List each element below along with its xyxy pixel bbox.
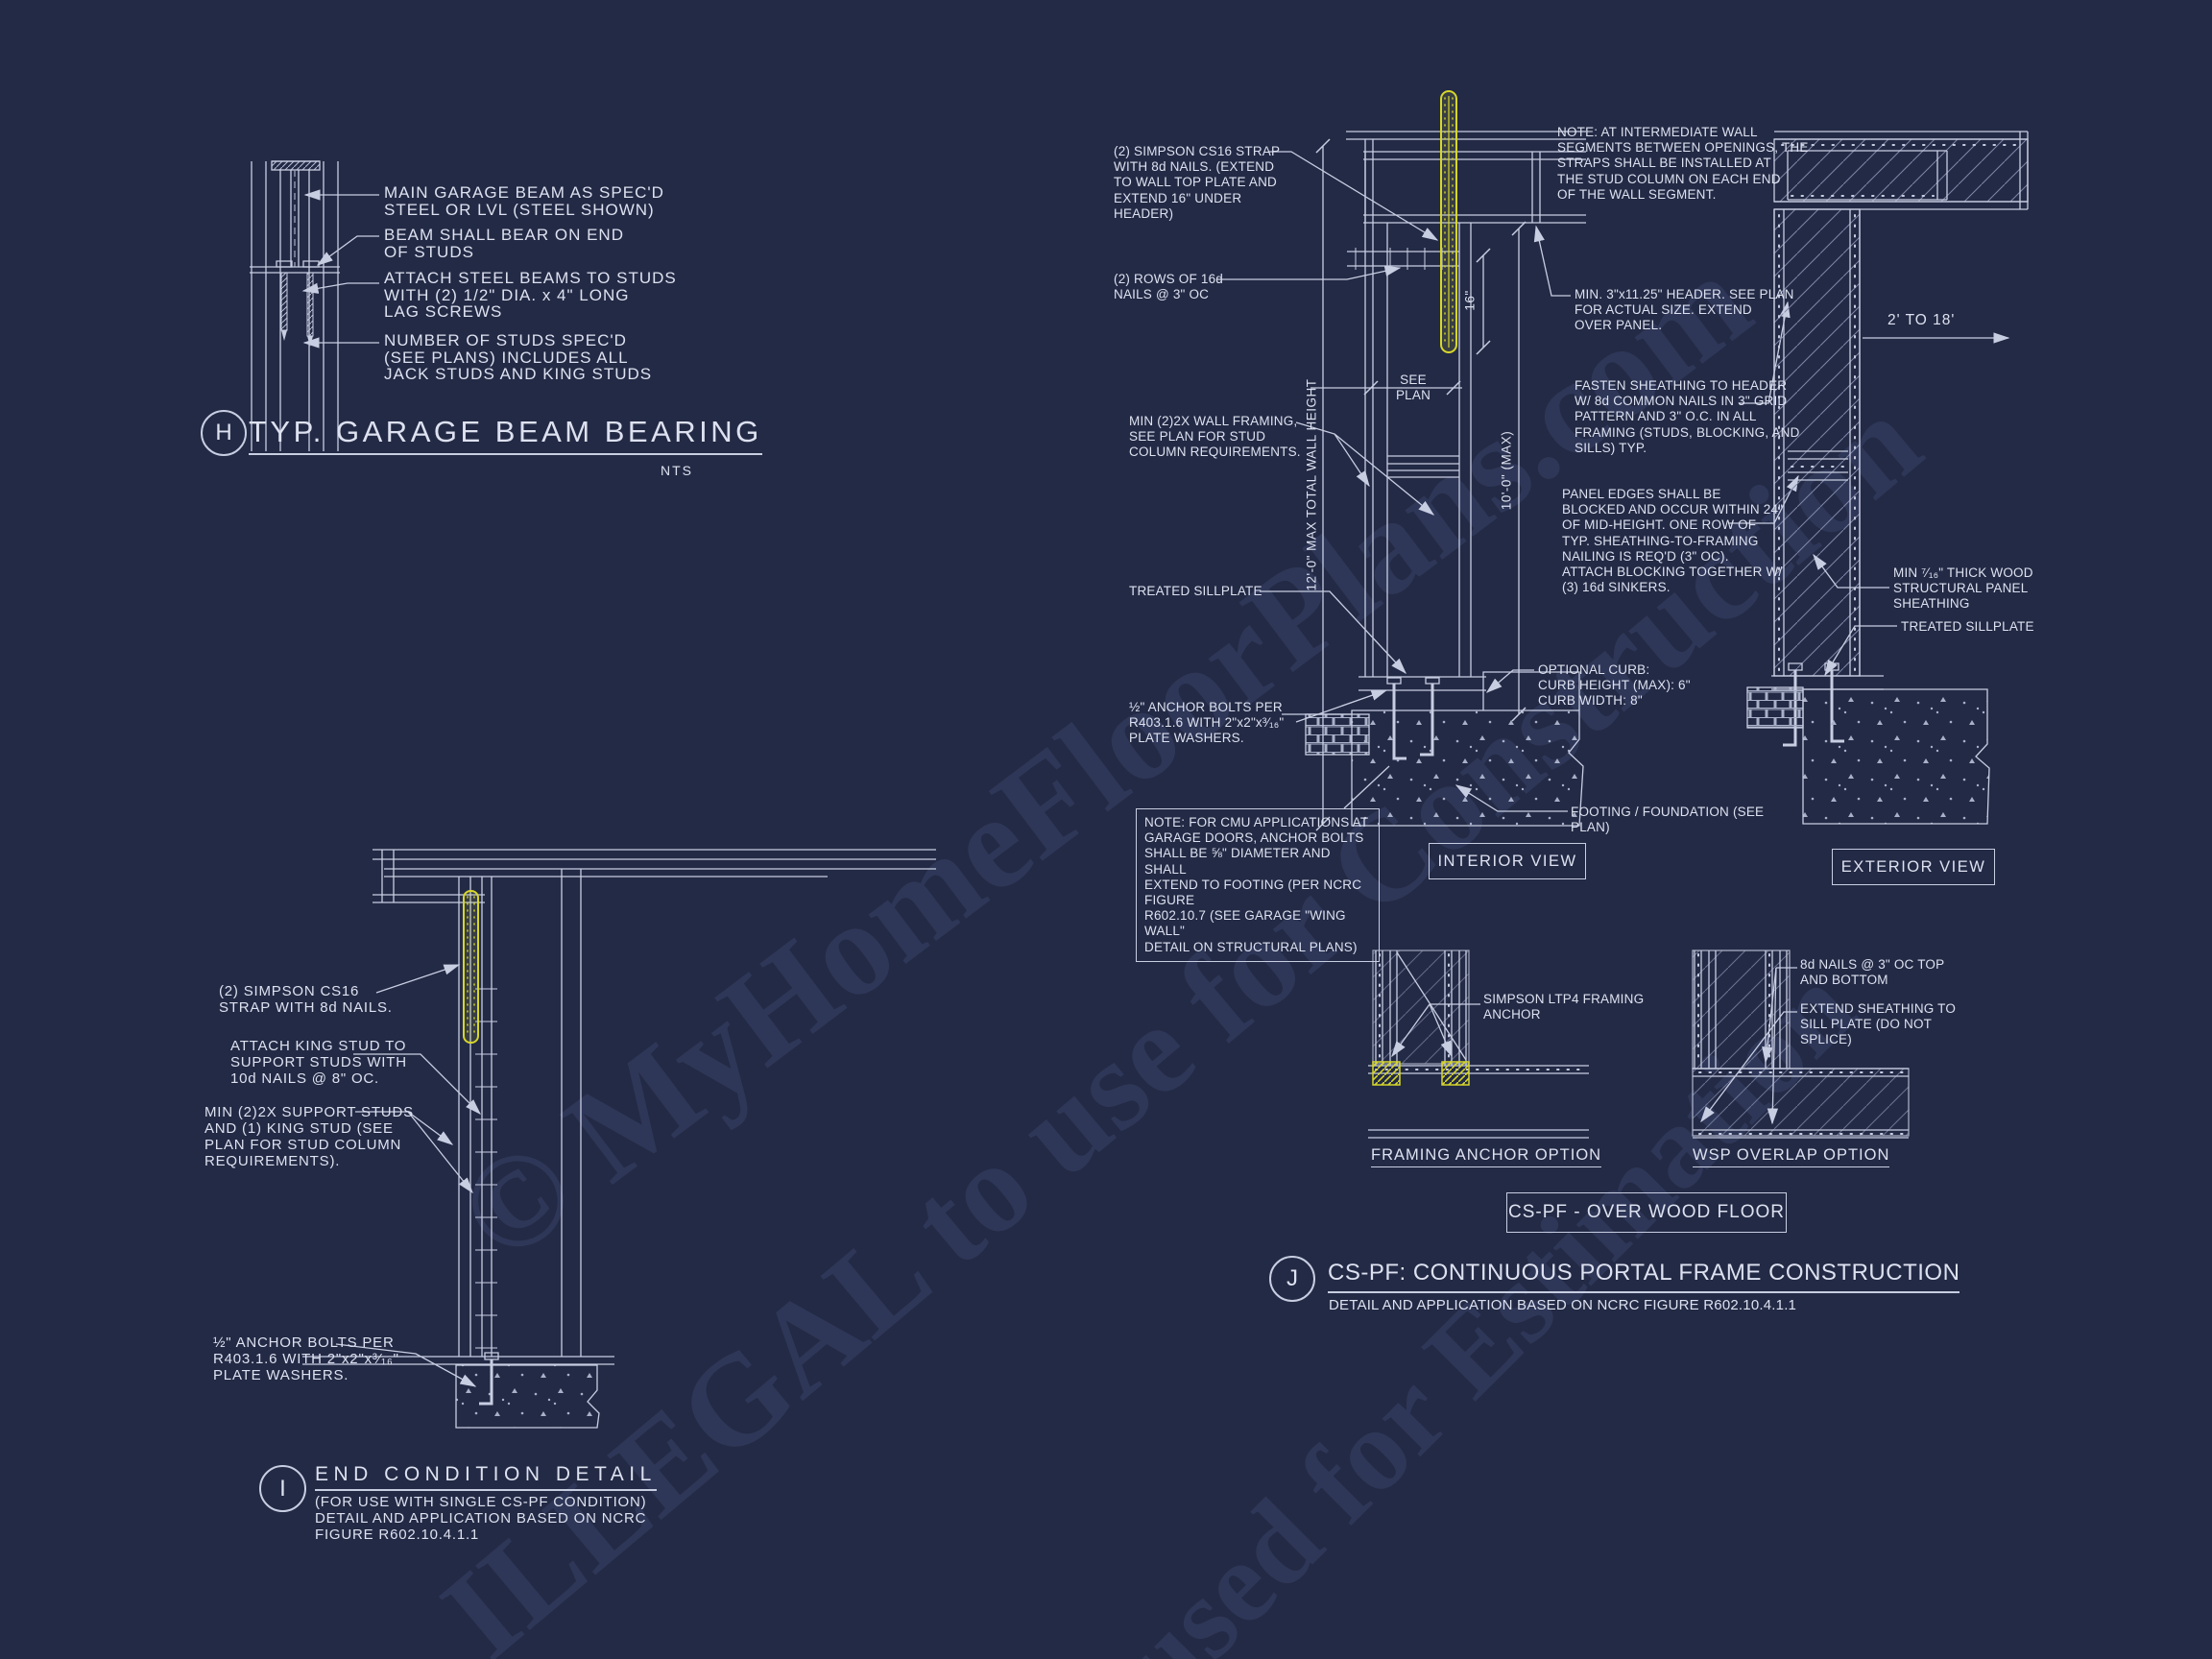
annotation-header-size: MIN. 3"x11.25" HEADER. SEE PLAN FOR ACTU…: [1575, 287, 1794, 334]
framing-anchor-option-drawing: [1368, 950, 1589, 1138]
detail-h-bubble: H: [201, 410, 247, 456]
detail-i-title: END CONDITION DETAIL: [315, 1463, 657, 1491]
annotation-extend-sheathing: EXTEND SHEATHING TO SILL PLATE (DO NOT S…: [1800, 1001, 1956, 1048]
strap-highlight: [464, 891, 478, 1043]
annotation-ltp4-anchor: SIMPSON LTP4 FRAMING ANCHOR: [1483, 992, 1644, 1022]
annotation-stud-count: NUMBER OF STUDS SPEC'D (SEE PLANS) INCLU…: [384, 332, 652, 383]
annotation-main-beam: MAIN GARAGE BEAM AS SPEC'D STEEL OR LVL …: [384, 184, 664, 218]
detail-j-subtitle: DETAIL AND APPLICATION BASED ON NCRC FIG…: [1329, 1298, 1796, 1313]
annotation-panel-edges: PANEL EDGES SHALL BE BLOCKED AND OCCUR W…: [1562, 487, 1783, 595]
annotation-support-studs: MIN (2)2X SUPPORT STUDS AND (1) KING STU…: [204, 1104, 414, 1169]
detail-i-bubble: I: [259, 1465, 306, 1512]
annotation-optional-curb: OPTIONAL CURB: CURB HEIGHT (MAX): 6" CUR…: [1538, 662, 1691, 709]
annotation-attach-beams: ATTACH STEEL BEAMS TO STUDS WITH (2) 1/2…: [384, 270, 677, 321]
annotation-anchor-bolts: ½" ANCHOR BOLTS PER R403.1.6 WITH 2"x2"x…: [213, 1334, 399, 1383]
annotation-wsp-sheathing: MIN ⁷⁄₁₆" THICK WOOD STRUCTURAL PANEL SH…: [1893, 565, 2033, 613]
wsp-overlap-option-title: WSP OVERLAP OPTION: [1693, 1146, 1889, 1167]
exterior-view-label: EXTERIOR VIEW: [1832, 849, 1995, 885]
blueprint-sheet: © MyHomeFloorPlans.com ILLEGAL to use fo…: [0, 0, 2212, 1659]
annotation-nail-rows: (2) ROWS OF 16d NAILS @ 3" OC: [1114, 272, 1223, 302]
note-cmu-box: NOTE: FOR CMU APPLICATIONS AT GARAGE DOO…: [1136, 808, 1380, 962]
annotation-king-stud: ATTACH KING STUD TO SUPPORT STUDS WITH 1…: [230, 1038, 407, 1087]
annotation-beam-bearing: BEAM SHALL BEAR ON END OF STUDS: [384, 227, 624, 260]
detail-h-title: TYP. GARAGE BEAM BEARING: [249, 415, 762, 455]
annotation-8d-nails: 8d NAILS @ 3" OC TOP AND BOTTOM: [1800, 957, 1944, 988]
dim-strap-extension: 16": [1463, 290, 1478, 310]
dim-total-wall-height: 12'-0" MAX TOTAL WALL HEIGHT: [1305, 379, 1319, 591]
middle-note-leaders: [1536, 227, 1798, 523]
note-intermediate-wall: NOTE: AT INTERMEDIATE WALL SEGMENTS BETW…: [1557, 125, 1809, 203]
detail-j-bubble: J: [1269, 1256, 1315, 1302]
drawing-canvas: [0, 0, 2212, 1659]
annotation-cs16-strap: (2) SIMPSON CS16 STRAP WITH 8d NAILS.: [219, 983, 393, 1016]
garage-beam-drawing: [250, 161, 379, 451]
exterior-view-drawing: [1747, 132, 2028, 824]
framing-anchor-option-title: FRAMING ANCHOR OPTION: [1371, 1146, 1601, 1167]
floor-tag-box: CS-PF - OVER WOOD FLOOR: [1506, 1192, 1787, 1233]
annotation-sillplate-interior: TREATED SILLPLATE: [1129, 584, 1262, 599]
annotation-sillplate-exterior: TREATED SILLPLATE: [1901, 619, 2034, 635]
interior-view-label: INTERIOR VIEW: [1429, 843, 1586, 879]
strap-highlight: [1441, 91, 1456, 352]
detail-h-scale: NTS: [661, 463, 693, 479]
annotation-wall-framing: MIN (2)2X WALL FRAMING, SEE PLAN FOR STU…: [1129, 414, 1301, 461]
annotation-fasten-sheathing: FASTEN SHEATHING TO HEADER W/ 8d COMMON …: [1575, 378, 1800, 456]
annotation-strap-interior: (2) SIMPSON CS16 STRAP WITH 8d NAILS. (E…: [1114, 144, 1280, 222]
detail-i-subtitle: (FOR USE WITH SINGLE CS-PF CONDITION) DE…: [315, 1494, 646, 1543]
annotation-footing: FOOTING / FOUNDATION (SEE PLAN): [1571, 805, 1764, 835]
dim-see-plan: SEE PLAN: [1396, 373, 1431, 403]
detail-j-title: CS-PF: CONTINUOUS PORTAL FRAME CONSTRUCT…: [1328, 1260, 1960, 1293]
annotation-anchor-interior: ½" ANCHOR BOLTS PER R403.1.6 WITH 2"x2"x…: [1129, 700, 1284, 747]
dim-opening-width: 2' TO 18': [1887, 313, 1955, 328]
dim-clear-height: 10'-0" (MAX): [1500, 431, 1514, 510]
